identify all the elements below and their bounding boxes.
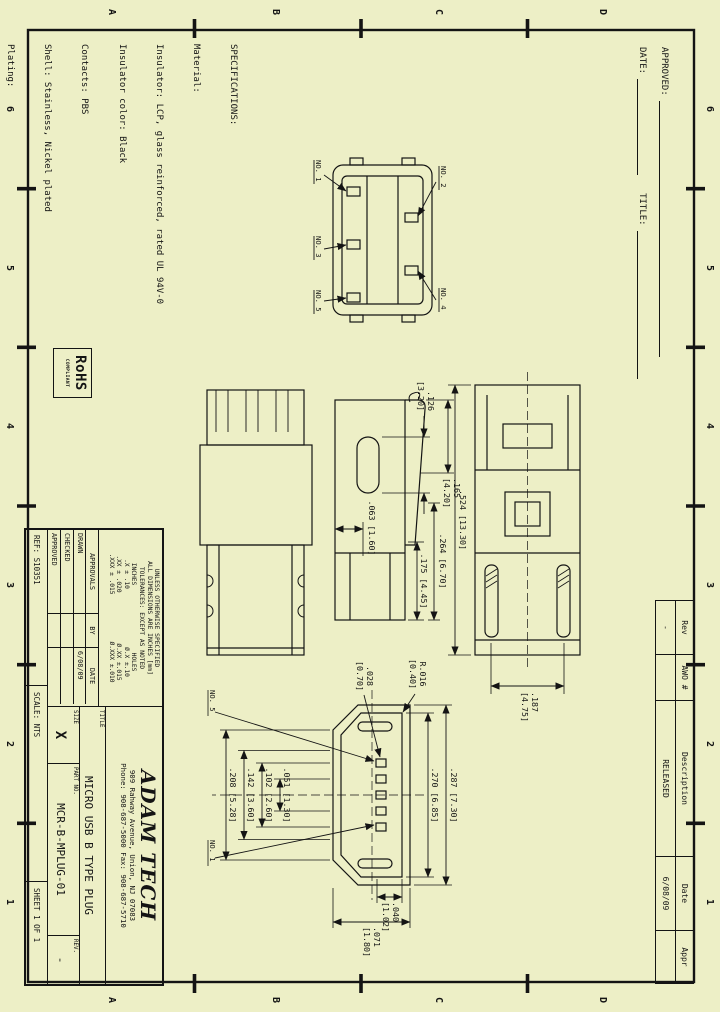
rohs-text: RoHS: [69, 349, 91, 397]
company-block: ADAM TECH 909 Rahway Avenue, Union, NJ 0…: [105, 707, 162, 984]
view-bottom: [200, 390, 312, 655]
rev-header: AWO #: [675, 655, 694, 701]
dim-126: .126[3.20]: [416, 381, 436, 411]
spec-line: Material:: [190, 44, 202, 331]
zone-letter: C: [433, 997, 444, 1003]
tol-cell: .X ± .10: [122, 530, 129, 618]
zone-letter: A: [106, 9, 117, 15]
zone-number: 1: [4, 899, 15, 905]
zone-number: 5: [704, 265, 715, 271]
dim-040: .040[1.02]: [381, 902, 401, 932]
rev-cell: -: [656, 601, 675, 655]
approvals-cell: APPROVED: [48, 530, 61, 614]
dim-071: .071[1.80]: [362, 927, 382, 957]
rev-cell: RELEASED: [656, 701, 675, 857]
dim-102: .102[2.60]: [264, 768, 274, 823]
approvals-cell: DRAWN: [73, 530, 86, 614]
scale-field: SCALE: NTS: [26, 686, 47, 882]
dim-175: .175[4.45]: [419, 554, 429, 609]
dim-028: .028[0.70]: [355, 661, 375, 691]
pin-label-1: NO. 1: [314, 160, 323, 182]
title-block: UNLESS OTHERWISE SPECIFIED ALL DIMENSION…: [24, 528, 164, 986]
title-line: [637, 231, 649, 379]
approvals-cell: [61, 648, 74, 704]
rev-header: Rev: [675, 601, 694, 655]
approved-line: [659, 101, 671, 357]
zone-number: 6: [704, 106, 715, 112]
view-side: [335, 392, 425, 620]
dims-side-view: [335, 400, 454, 620]
tol-col-holes: HOLES: [130, 618, 137, 706]
dim-142: .142[3.60]: [246, 768, 256, 823]
dim-187: .187[4.75]: [520, 692, 540, 722]
company-name: ADAM TECH: [137, 707, 159, 984]
zone-number: 3: [704, 582, 715, 588]
approvals-header: BY: [86, 614, 99, 648]
tol-cell: Ø.XX ±.015: [115, 618, 122, 706]
specifications-block: SPECIFICATIONS: Material: Insulator: LCP…: [0, 44, 264, 331]
dims-front-face: [208, 690, 452, 928]
zone-letter: B: [270, 997, 281, 1003]
spec-line: SPECIFICATIONS:: [227, 44, 239, 331]
rohs-compliant-logo: RoHS COMPLIANT: [53, 348, 92, 398]
title-block-title-label: TITLE: [98, 710, 104, 727]
approvals-cell: 6/08/09: [73, 648, 86, 704]
drawing-title: MICRO USB B TYPE PLUG: [82, 707, 105, 984]
tolerance-note: UNLESS OTHERWISE SPECIFIED ALL DIMENSION…: [98, 530, 162, 706]
title-block-bottom-row: REF: S10351 SCALE: NTS SHEET 1 OF 1: [26, 530, 48, 984]
date-label: DATE:: [637, 47, 647, 74]
dim-063: .063[1.60]: [367, 501, 377, 556]
tol-col-inches: INCHES: [130, 530, 137, 618]
tol-cell: Ø.X ±.10: [122, 618, 129, 706]
spec-line: Contacts: PBS: [78, 44, 90, 331]
pin-label-4: NO. 4: [439, 288, 448, 310]
size-label: SIZE: [72, 710, 78, 724]
pin-label-3: NO. 3: [314, 236, 323, 258]
rev-label: REV.: [72, 939, 78, 953]
zone-letter: C: [433, 9, 444, 15]
approval-block: APPROVED: DATE: TITLE:: [630, 47, 674, 407]
approvals-cell: [48, 648, 61, 704]
pin-label-5-front: NO. 5: [208, 690, 217, 712]
sheet-field: SHEET 1 OF 1: [32, 882, 41, 984]
zone-letter: B: [270, 9, 281, 15]
dim-051: .051[1.30]: [282, 768, 292, 823]
spec-line: Plating:: [3, 44, 15, 331]
tol-cell: Ø.XXX ±.010: [108, 618, 115, 706]
spec-line: Shell: Stainless, Nickel plated: [41, 44, 53, 331]
rev-cell: [656, 655, 675, 701]
tol-cell: .XXX ± .015: [108, 530, 115, 618]
pin-label-1-front: NO. 1: [208, 840, 217, 862]
zone-number: 4: [704, 423, 715, 429]
approvals-cell: [48, 614, 61, 648]
ref-field: REF: S10351: [26, 530, 47, 686]
approvals-header: DATE: [86, 648, 99, 704]
zone-letter: D: [597, 997, 608, 1003]
approvals-cell: [73, 614, 86, 648]
zone-number: 4: [4, 423, 15, 429]
zone-number: 3: [4, 582, 15, 588]
approvals-header: APPROVALS: [86, 530, 99, 614]
drawing-page: 6 5 4 3 2 1 6 5 4 3 2 1 D C B A D C B A: [0, 0, 720, 1012]
dim-r016: R.016[0.40]: [408, 659, 428, 689]
spec-line: Insulator: LCP, glass reinforced, rated …: [152, 44, 164, 331]
zone-number: 2: [4, 741, 15, 747]
title-label: TITLE:: [637, 193, 647, 226]
rev-cell: [656, 931, 675, 983]
zone-letter: A: [106, 997, 117, 1003]
pin-label-2: NO. 2: [439, 166, 448, 188]
tol-line-3: TOLERANCES: EXCEPT AS NOTED: [138, 530, 145, 706]
tol-cell: .XX ± .020: [115, 530, 122, 618]
zone-number: 1: [704, 899, 715, 905]
size-cell: SIZE X: [48, 707, 79, 764]
view-top: [475, 372, 580, 668]
view-mating-face-schematic: [314, 158, 439, 322]
drawing-sheet-landscape: 6 5 4 3 2 1 6 5 4 3 2 1 D C B A D C B A: [0, 0, 720, 1012]
dim-208: .208[5.28]: [228, 768, 238, 823]
rev-header: Appr: [675, 931, 694, 983]
company-address: 909 Rahway Avenue, Union, NJ 07083: [128, 707, 137, 984]
approved-label: APPROVED:: [659, 47, 669, 96]
dim-524: .524[13.30]: [458, 490, 468, 550]
rev-cell: 6/08/09: [656, 857, 675, 931]
approvals-table: APPROVALS BY DATE DRAWN 6/08/09 CHECKED …: [48, 530, 98, 706]
title-row: TITLE MICRO USB B TYPE PLUG: [79, 707, 105, 984]
zone-number: 2: [704, 741, 715, 747]
tol-line-2: ALL DIMENSIONS ARE INCHES [mm]: [145, 530, 152, 706]
tol-line-1: UNLESS OTHERWISE SPECIFIED: [153, 530, 160, 706]
company-phone: Phone: 908-687-5000 Fax: 908-687-5710: [119, 707, 128, 984]
part-no-cell: PART NO. MCR-B-MPLUG-01: [48, 764, 79, 936]
rev-header: Description: [675, 701, 694, 857]
spec-line: Insulator color: Black: [115, 44, 127, 331]
pin-label-5: NO. 5: [314, 290, 323, 312]
rev-header: Date: [675, 857, 694, 931]
dim-270: .270[6.85]: [430, 768, 440, 823]
revision-table: Rev AWO # Description Date Appr - RELEAS…: [655, 600, 694, 984]
zone-letter: D: [597, 9, 608, 15]
dim-287: .287[7.30]: [449, 768, 459, 823]
dim-264: .264[6.70]: [438, 534, 448, 589]
date-line: [637, 79, 649, 175]
approvals-cell: [61, 614, 74, 648]
approvals-cell: CHECKED: [61, 530, 74, 614]
rev-cell-block: REV. -: [48, 936, 79, 984]
part-no-label: PART NO.: [72, 767, 78, 795]
